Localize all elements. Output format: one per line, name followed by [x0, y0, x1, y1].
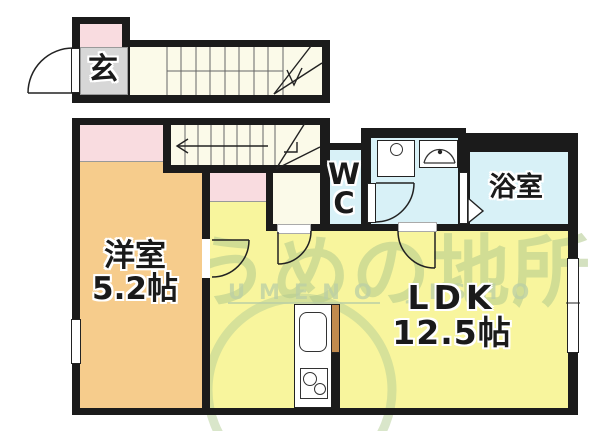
- stairs-main: [171, 125, 320, 165]
- stairs-upper: [130, 47, 322, 95]
- entrance-door-leaf: [71, 48, 80, 93]
- washing-machine-lid: [390, 143, 403, 156]
- wall-landing-left: [266, 173, 273, 231]
- wc-label-c: C: [333, 186, 354, 220]
- door-landing-gap: [277, 224, 311, 234]
- western-closet: [80, 125, 163, 162]
- kitchen-wall: [331, 353, 340, 408]
- window-right: [567, 258, 579, 353]
- wall-washroom-top: [361, 128, 466, 138]
- kitchen-sink-icon: [299, 312, 327, 352]
- bathroom-label: 浴室: [466, 174, 566, 202]
- ldk-name: LDK: [408, 278, 497, 317]
- western-room-name: 洋室: [104, 238, 166, 274]
- wc-label: W C: [328, 160, 360, 218]
- kitchen-counter-edge: [331, 304, 340, 353]
- ldk-size: 12.5帖: [392, 313, 511, 352]
- western-room-label: 洋室 5.2帖: [75, 240, 195, 305]
- hall-closet: [210, 173, 266, 202]
- wall-bath-top: [458, 133, 578, 152]
- stove-burner-small: [314, 383, 326, 395]
- wall-stairs-bottom: [163, 165, 330, 173]
- wall-stairs-left: [163, 118, 171, 173]
- floorplan: うめの地所 UMENO JISHO: [0, 0, 600, 431]
- door-western-gap: [202, 239, 210, 278]
- door-wc-leaf: [367, 183, 376, 223]
- wall-bottom: [72, 408, 578, 415]
- wall-western-ldk: [202, 173, 210, 415]
- ldk-label: LDK 12.5帖: [372, 281, 532, 350]
- wash-basin-icon: [419, 140, 458, 168]
- door-washroom-gap: [398, 222, 437, 232]
- entrance-closet: [80, 24, 122, 47]
- entrance-label: 玄: [86, 54, 120, 86]
- window-left: [71, 319, 81, 364]
- wall-top-left: [72, 118, 330, 125]
- western-room-size: 5.2帖: [92, 271, 178, 307]
